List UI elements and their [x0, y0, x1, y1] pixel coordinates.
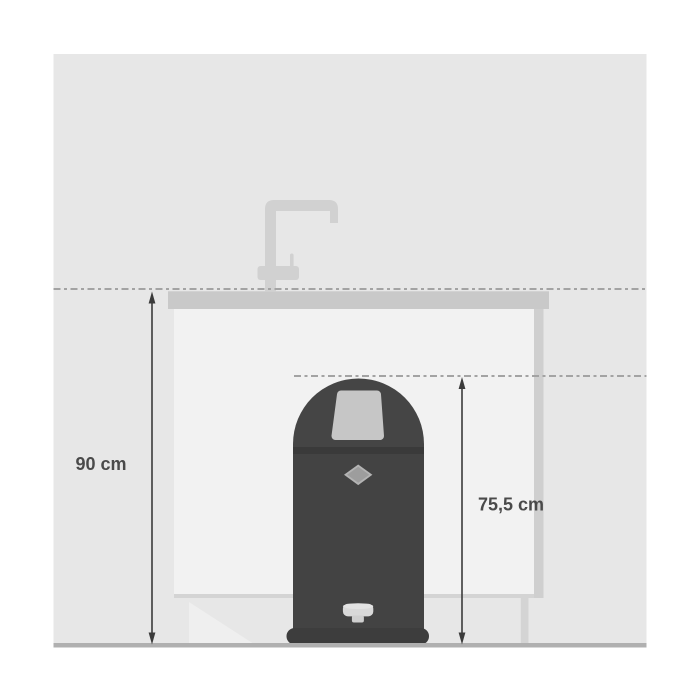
svg-text:75,5 cm: 75,5 cm [478, 495, 544, 515]
svg-text:90 cm: 90 cm [75, 454, 126, 474]
